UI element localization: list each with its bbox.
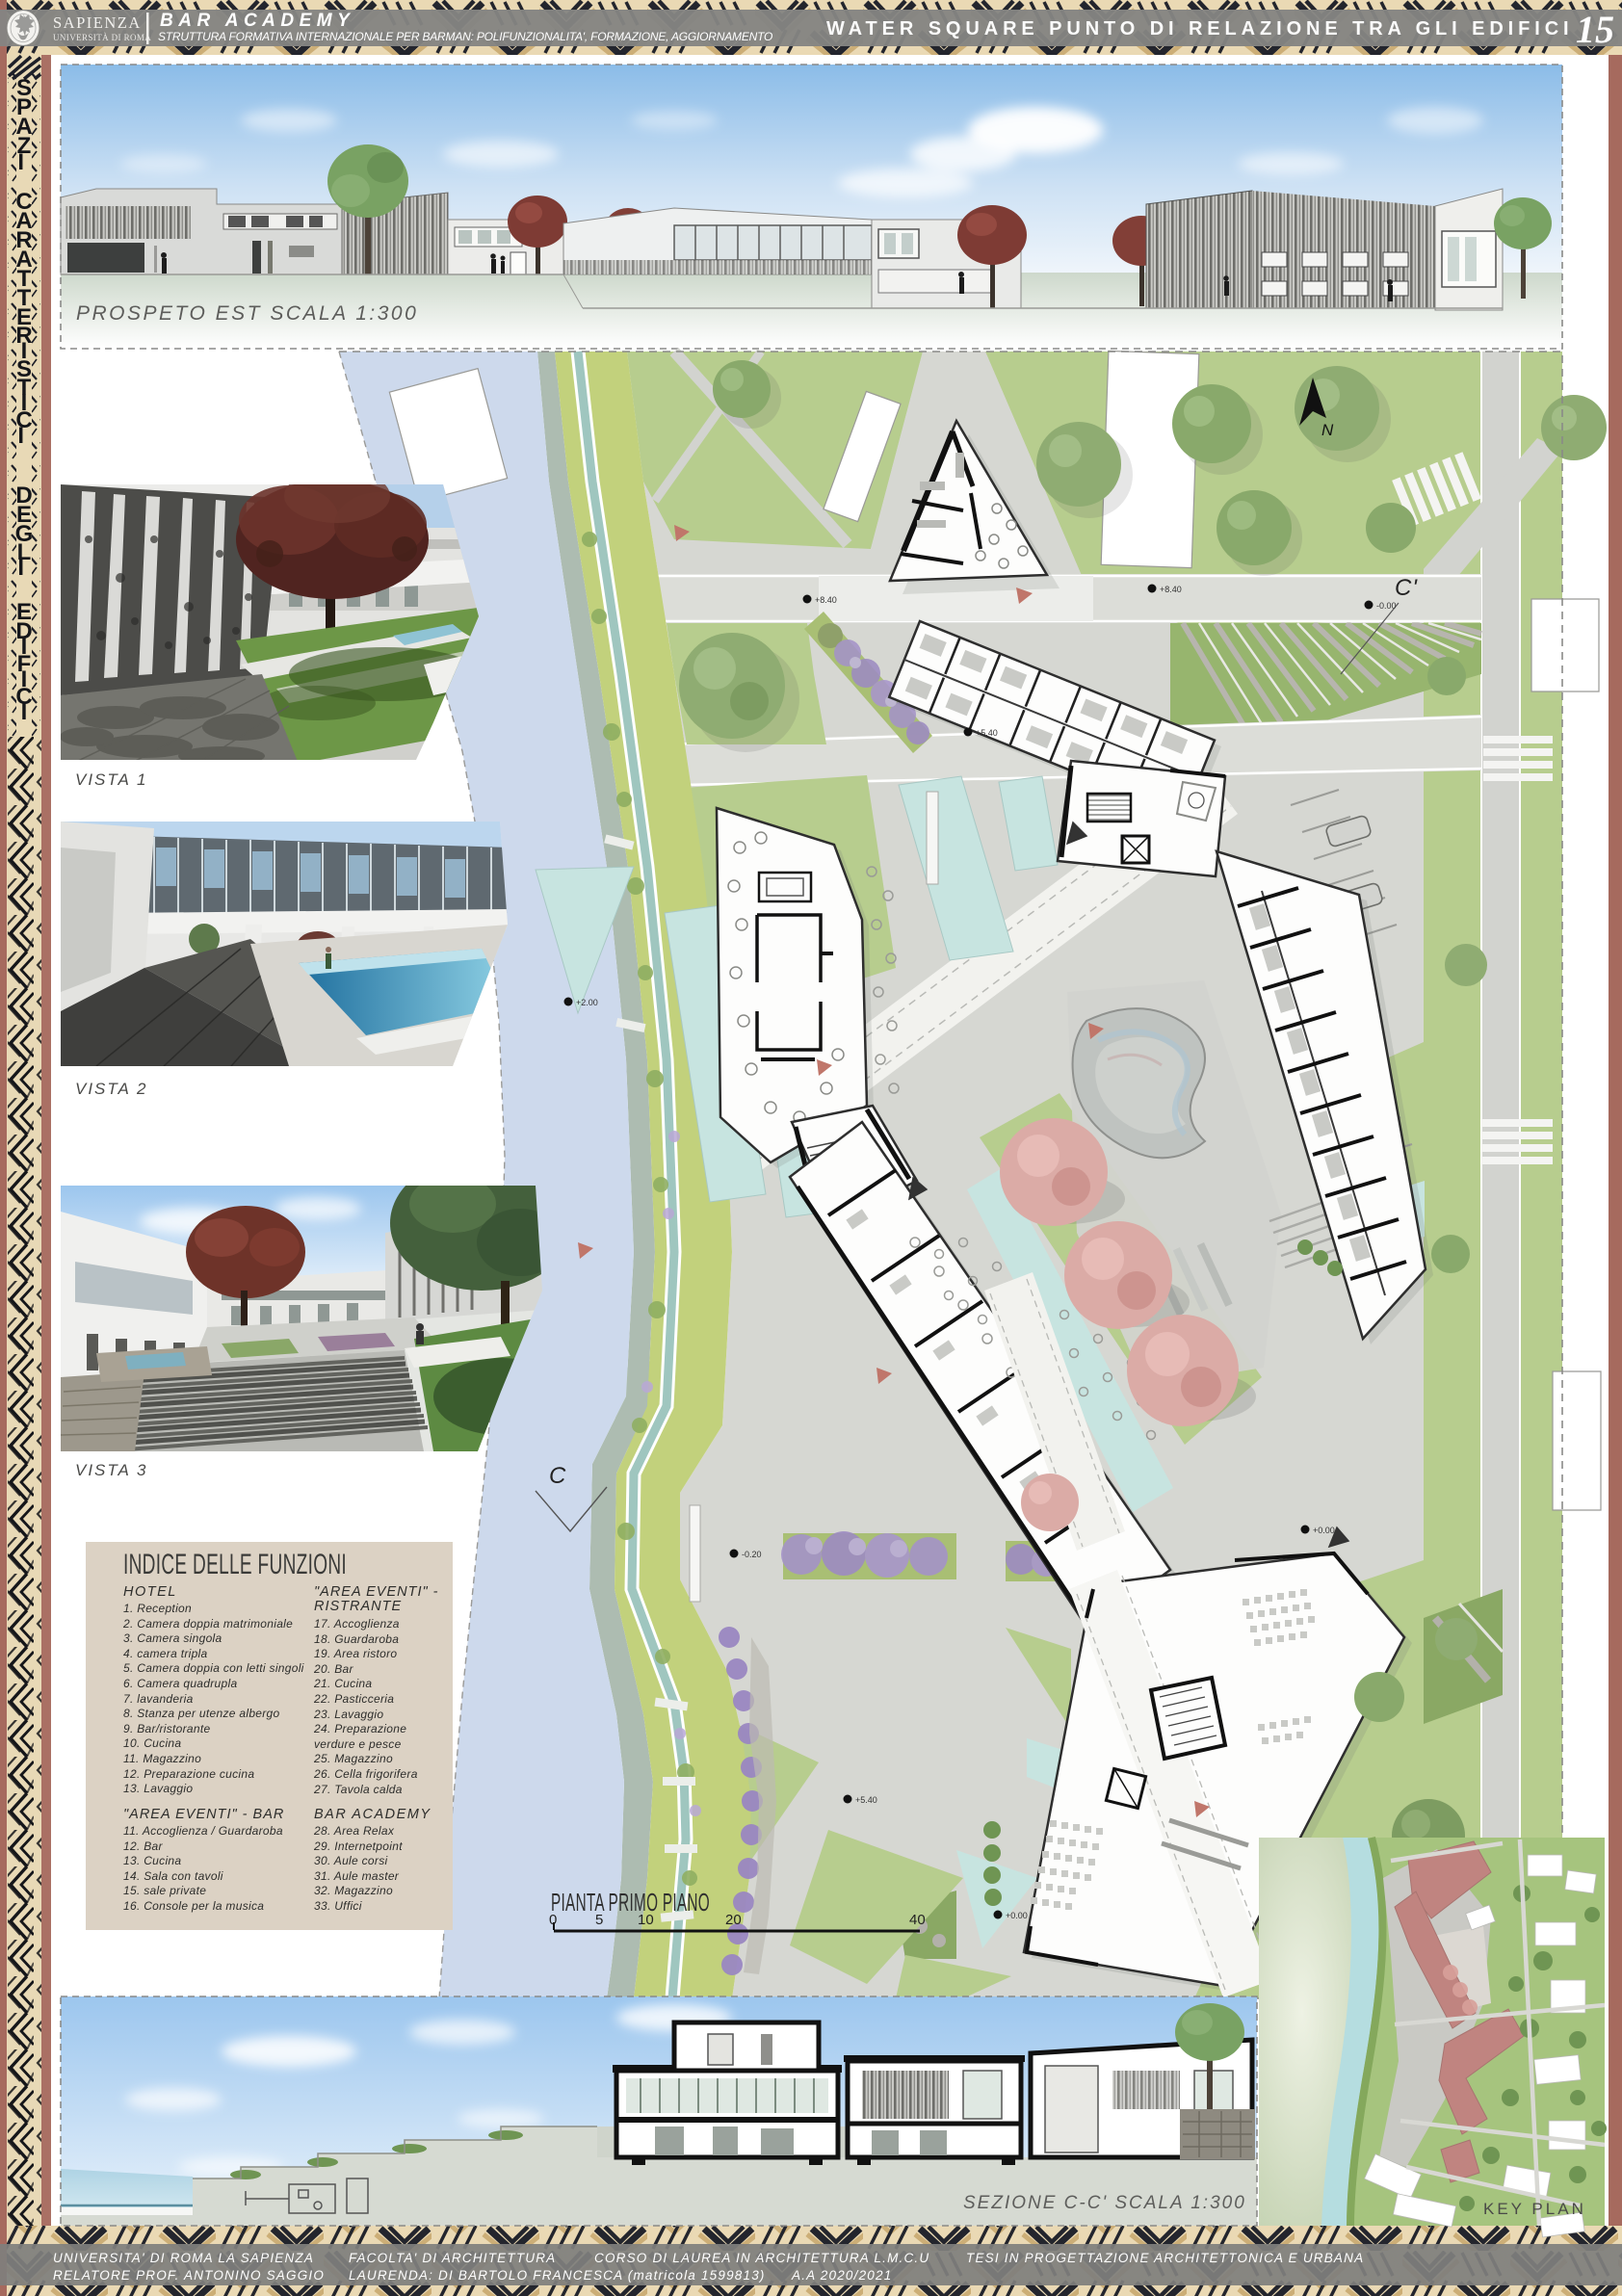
svg-text:10. Cucina: 10. Cucina <box>123 1736 181 1750</box>
svg-text:18. Guardaroba: 18. Guardaroba <box>314 1632 399 1646</box>
svg-text:14. Sala con tavoli: 14. Sala con tavoli <box>123 1869 223 1883</box>
svg-text:28. Area Relax: 28. Area Relax <box>313 1824 395 1838</box>
svg-text:UNIVERSITÀ DI ROMA: UNIVERSITÀ DI ROMA <box>53 33 151 42</box>
svg-text:PROSPETO EST SCALA 1:300: PROSPETO EST SCALA 1:300 <box>76 302 418 325</box>
svg-text:BAR ACADEMY: BAR ACADEMY <box>314 1807 432 1822</box>
svg-text:15: 15 <box>1576 8 1614 51</box>
svg-text:5. Camera doppia con letti sin: 5. Camera doppia con letti singoli <box>123 1661 304 1675</box>
svg-text:29. Internetpoint: 29. Internetpoint <box>313 1839 403 1853</box>
svg-text:PIANTA PRIMO PIANO: PIANTA PRIMO PIANO <box>551 1888 710 1917</box>
svg-text:12. Bar: 12. Bar <box>123 1839 163 1853</box>
svg-text:-0.20: -0.20 <box>742 1550 762 1559</box>
svg-text:11. Magazzino: 11. Magazzino <box>123 1752 201 1765</box>
svg-text:11. Accoglienza / Guardaroba: 11. Accoglienza / Guardaroba <box>123 1824 283 1838</box>
svg-text:INDICE DELLE FUNZIONI: INDICE DELLE FUNZIONI <box>123 1549 347 1580</box>
svg-text:0: 0 <box>549 1912 557 1928</box>
svg-text:+2.00: +2.00 <box>576 998 598 1007</box>
svg-text:STRUTTURA FORMATIVA INTERNAZIO: STRUTTURA FORMATIVA INTERNAZIONALE PER B… <box>158 30 772 43</box>
svg-text:13. Cucina: 13. Cucina <box>123 1854 181 1867</box>
svg-text:30. Aule corsi: 30. Aule corsi <box>314 1854 387 1867</box>
svg-text:25. Magazzino: 25. Magazzino <box>313 1752 393 1765</box>
svg-text:VISTA 2: VISTA 2 <box>75 1080 147 1098</box>
svg-text:22. Pasticceria: 22. Pasticceria <box>313 1692 394 1706</box>
svg-text:1. Reception: 1. Reception <box>123 1602 192 1615</box>
svg-text:VISTA 1: VISTA 1 <box>75 770 147 789</box>
svg-text:+0.00: +0.00 <box>1006 1911 1028 1920</box>
svg-text:+5.40: +5.40 <box>976 728 998 738</box>
svg-text:26. Cella frigorifera: 26. Cella frigorifera <box>313 1767 418 1781</box>
svg-text:BAR ACADEMY: BAR ACADEMY <box>160 11 354 31</box>
svg-text:SPAZI CARATTERISTICI DEGLI EDI: SPAZI CARATTERISTICI DEGLI EDIFICI <box>15 75 34 725</box>
svg-text:VISTA 3: VISTA 3 <box>75 1461 147 1479</box>
svg-text:-0.00: -0.00 <box>1376 601 1397 611</box>
svg-text:10: 10 <box>638 1912 654 1928</box>
svg-text:+0.00: +0.00 <box>1313 1526 1335 1535</box>
svg-text:31. Aule master: 31. Aule master <box>314 1869 400 1883</box>
svg-text:27. Tavola calda: 27. Tavola calda <box>313 1783 403 1796</box>
svg-text:13. Lavaggio: 13. Lavaggio <box>123 1782 193 1795</box>
svg-text:SEZIONE C-C' SCALA 1:300: SEZIONE C-C' SCALA 1:300 <box>963 2193 1246 2213</box>
svg-text:17. Accoglienza: 17. Accoglienza <box>314 1617 400 1631</box>
svg-text:33. Uffici: 33. Uffici <box>314 1899 362 1913</box>
svg-text:4. camera tripla: 4. camera tripla <box>123 1647 208 1660</box>
svg-text:16. Console per la musica: 16. Console per la musica <box>123 1899 264 1913</box>
svg-text:C: C <box>549 1463 566 1489</box>
svg-text:5: 5 <box>595 1912 603 1928</box>
svg-text:C': C' <box>1395 575 1418 601</box>
svg-text:verdure e pesce: verdure e pesce <box>314 1737 402 1751</box>
svg-text:32. Magazzino: 32. Magazzino <box>314 1884 393 1897</box>
svg-text:WATER SQUARE PUNTO DI RELAZION: WATER SQUARE PUNTO DI RELAZIONE TRA GLI … <box>826 18 1574 39</box>
svg-text:15. sale private: 15. sale private <box>123 1884 206 1897</box>
svg-text:23. Lavaggio: 23. Lavaggio <box>313 1708 383 1721</box>
svg-text:UNIVERSITA' DI ROMA LA SAPIENZ: UNIVERSITA' DI ROMA LA SAPIENZAFACOLTA' … <box>53 2251 1364 2265</box>
svg-text:24. Preparazione: 24. Preparazione <box>313 1722 406 1735</box>
svg-text:2. Camera doppia matrimoniale: 2. Camera doppia matrimoniale <box>122 1617 293 1631</box>
svg-text:"AREA EVENTI" - BAR: "AREA EVENTI" - BAR <box>123 1807 284 1822</box>
svg-text:"AREA EVENTI" -: "AREA EVENTI" - <box>314 1584 439 1600</box>
svg-text:+8.40: +8.40 <box>815 595 837 605</box>
svg-text:HOTEL: HOTEL <box>123 1584 177 1600</box>
svg-text:21. Cucina: 21. Cucina <box>313 1677 372 1690</box>
svg-text:19. Area ristoro: 19. Area ristoro <box>314 1647 397 1660</box>
svg-text:20. Bar: 20. Bar <box>313 1662 353 1676</box>
svg-text:N: N <box>1321 421 1334 439</box>
svg-text:12. Preparazione cucina: 12. Preparazione cucina <box>123 1767 254 1781</box>
svg-text:9. Bar/ristorante: 9. Bar/ristorante <box>123 1722 210 1735</box>
svg-text:KEY PLAN: KEY PLAN <box>1483 2200 1586 2218</box>
svg-text:+8.40: +8.40 <box>1160 585 1182 594</box>
svg-text:40: 40 <box>909 1912 926 1928</box>
svg-text:6. Camera quadrupla: 6. Camera quadrupla <box>123 1677 237 1690</box>
svg-text:7. lavanderia: 7. lavanderia <box>123 1692 194 1706</box>
svg-text:+5.40: +5.40 <box>855 1795 877 1805</box>
svg-text:SAPIENZA: SAPIENZA <box>53 13 142 32</box>
svg-text:3. Camera singola: 3. Camera singola <box>123 1631 222 1645</box>
svg-text:RISTRANTE: RISTRANTE <box>314 1599 402 1614</box>
svg-text:8. Stanza per utenze albergo: 8. Stanza per utenze albergo <box>123 1707 280 1720</box>
svg-text:20: 20 <box>725 1912 742 1928</box>
